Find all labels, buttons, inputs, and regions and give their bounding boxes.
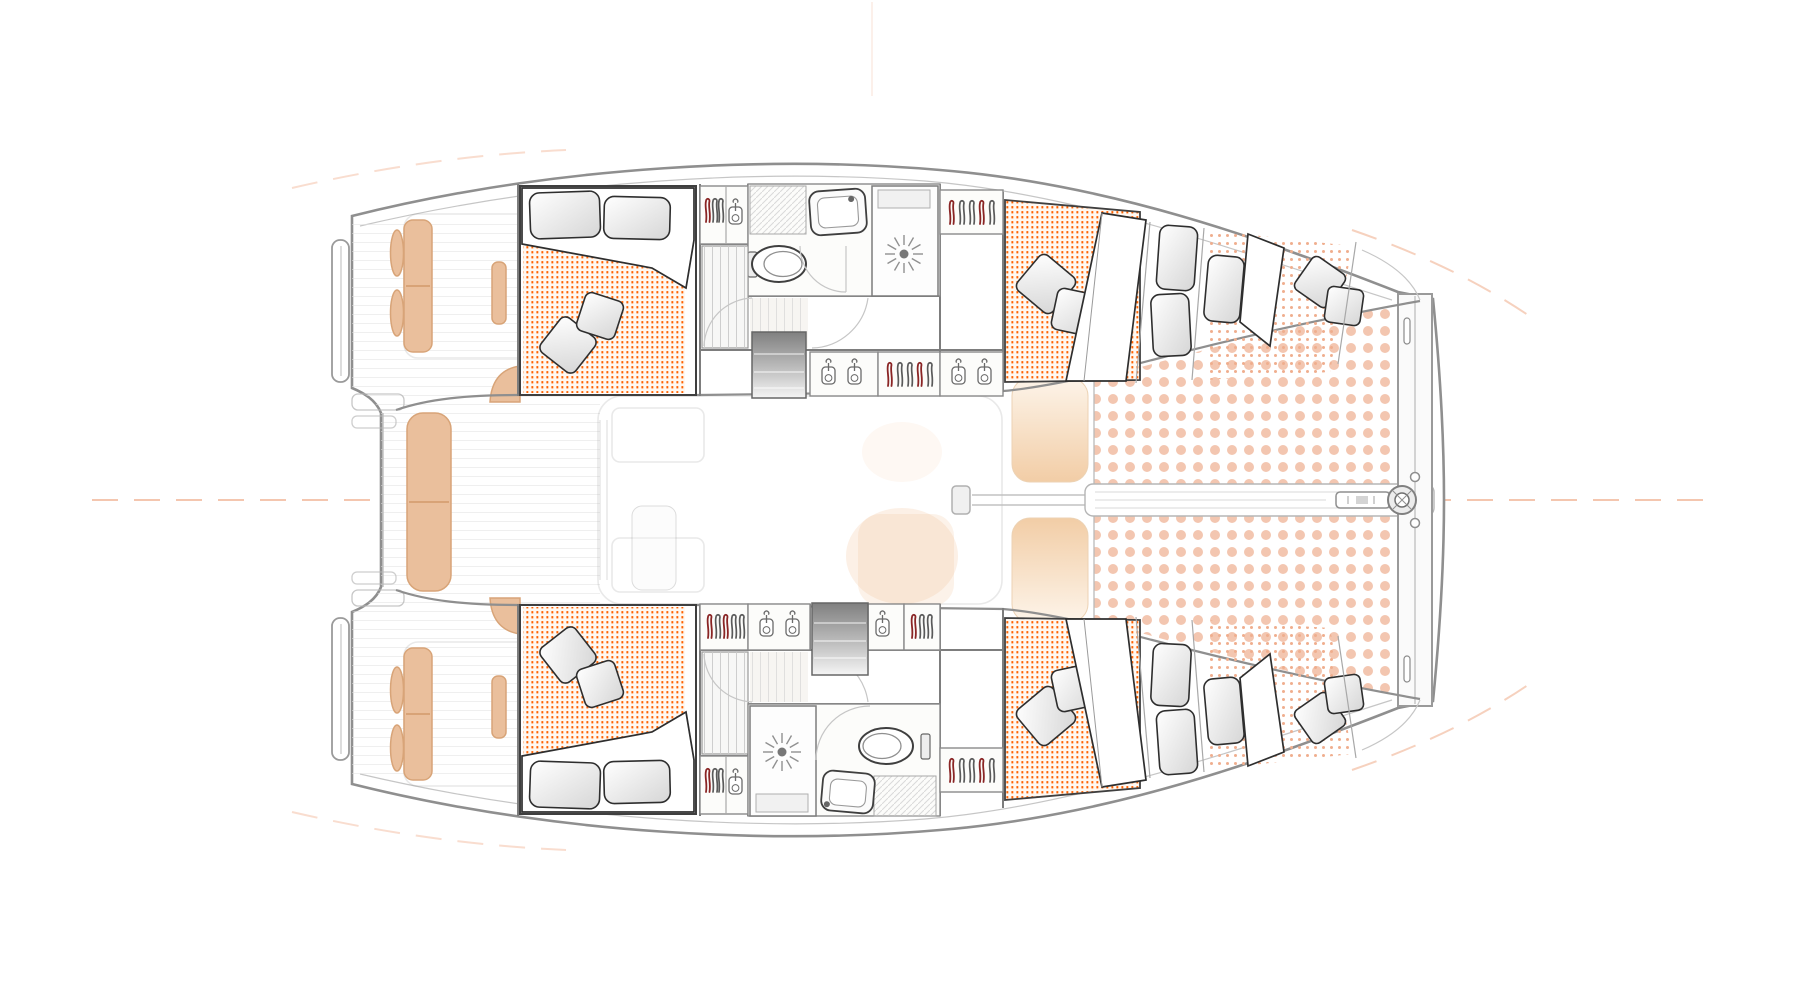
pillow [1156,225,1198,291]
bench-cushion [391,725,404,771]
port-aft-cabin [520,186,696,395]
pillow [1203,677,1245,746]
mast [952,486,970,514]
deck-hatch [1012,378,1088,482]
cockpit-table [632,506,676,590]
bench-cushion [391,230,404,276]
starboard-wardrobe-forward [940,748,1003,792]
starboard-companionway-steps [812,603,868,675]
vanity-counter [874,776,936,816]
vanity-counter [750,186,806,234]
port-wardrobe-forward [940,190,1003,234]
bench-cushion [492,676,506,738]
basin-icon [820,770,875,814]
catamaran-floor-plan: Sailing catamaran accommodation plan — t… [0,0,1800,1000]
pillow [529,191,601,239]
port-bathroom [748,184,940,296]
shower-icon [872,186,938,296]
pillow [1150,293,1191,357]
pillow [1156,709,1198,775]
forestay-fitting-icon [1388,486,1416,514]
bench-cushion [492,262,506,324]
starboard-wardrobe-aft [700,756,748,814]
basin-icon [809,188,868,236]
page: Sailing catamaran accommodation plan — t… [0,0,1800,1000]
port-wardrobe-aft [700,186,748,244]
starboard-aft-cabin [520,605,696,814]
starboard-bathroom [748,704,940,816]
pillow [529,761,601,809]
bench-cushion [391,667,404,713]
bench-cushion [391,290,404,336]
bowsprit-bar [1336,492,1390,508]
deck-hatch [1012,518,1088,622]
pillow [1150,643,1191,707]
shower-icon [750,706,816,816]
port-lockers [810,352,1003,396]
pillow [603,196,670,240]
pillow [603,760,670,804]
pillow [1203,255,1245,324]
